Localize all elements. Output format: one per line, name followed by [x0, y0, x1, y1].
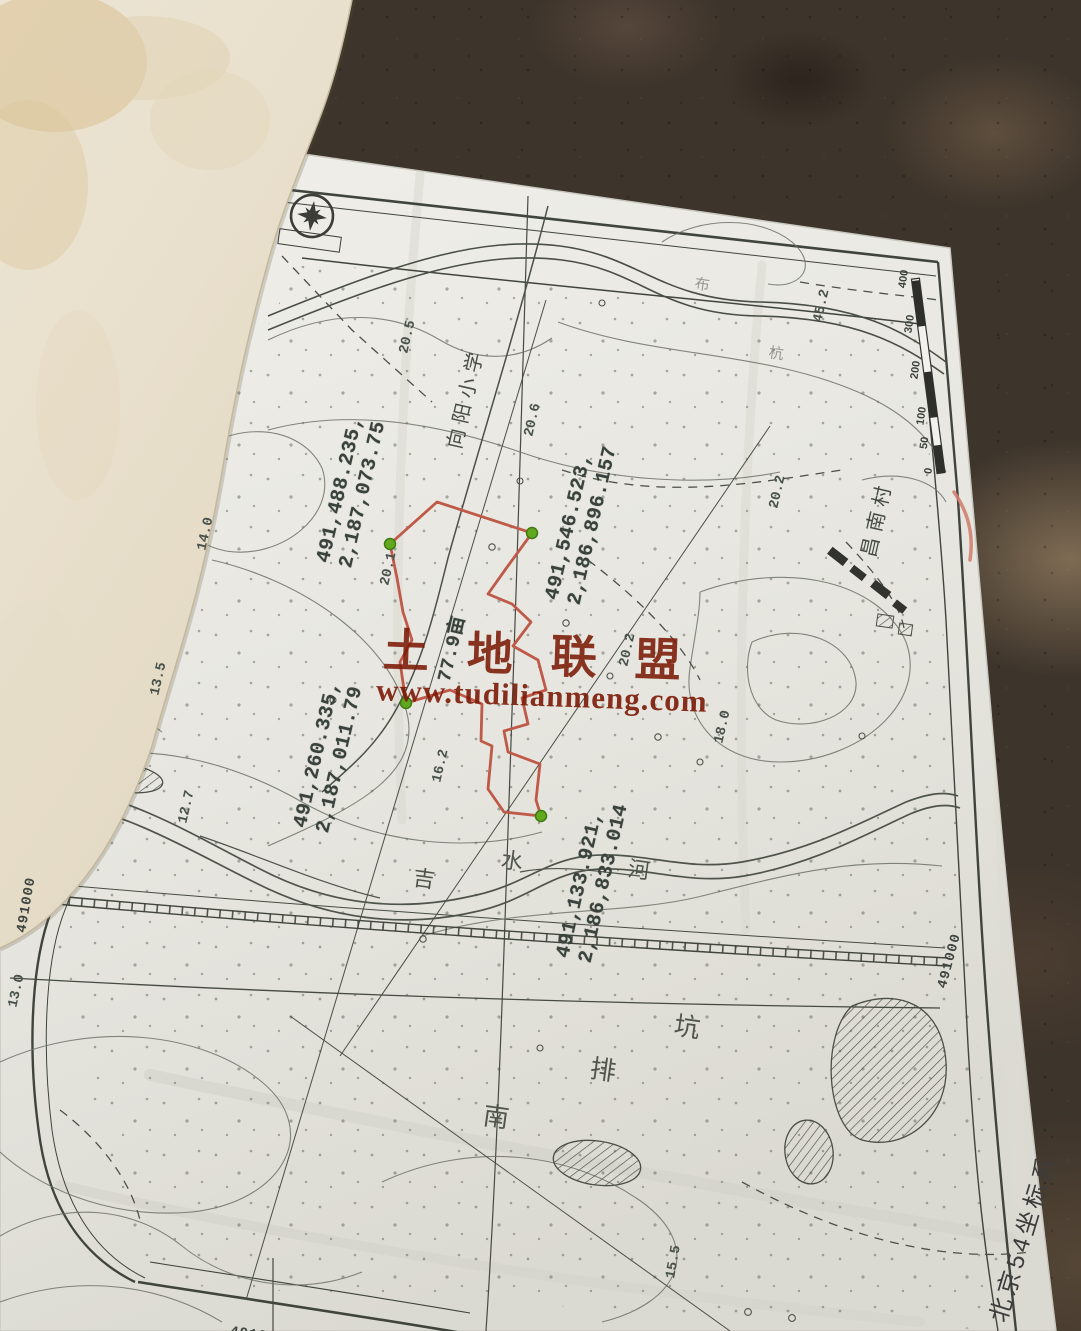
parcel-vertex-dot	[536, 811, 547, 822]
parcel-vertex-dot	[527, 528, 538, 539]
photo-of-survey-map: 491,488.235,2,187,073.75491,546.523,2,18…	[0, 0, 1081, 1331]
parcel-vertex-dot	[385, 539, 396, 550]
